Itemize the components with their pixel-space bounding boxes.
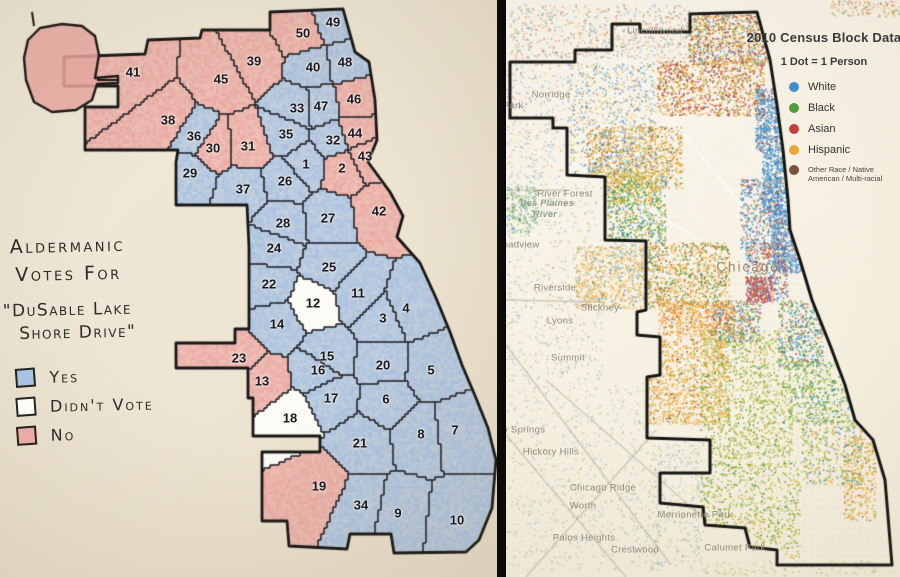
black-label: Black — [808, 102, 835, 114]
census-legend-title: 2010 Census Block Data — [745, 30, 900, 45]
vote-legend: Yes Didn't Vote No — [15, 361, 155, 451]
place-label-chicago-ridge: Chicago Ridge — [570, 483, 636, 494]
left-map-title: Aldermanic Votes For — [9, 231, 125, 289]
legend-row-other: Other Race / Native American / Multi-rac… — [789, 165, 900, 183]
yes-label: Yes — [49, 367, 79, 387]
ward-label-8: 8 — [417, 427, 424, 442]
didnt-vote-label: Didn't Vote — [50, 395, 154, 416]
place-label-norridge: Norridge — [532, 90, 571, 101]
didnt-vote-swatch — [15, 397, 36, 417]
ward-label-49: 49 — [326, 15, 340, 30]
place-label-calumet-park: Calumet Park — [704, 543, 765, 554]
ward-label-7: 7 — [451, 423, 458, 438]
ward-label-15: 15 — [320, 349, 334, 364]
ward-label-29: 29 — [183, 166, 197, 181]
left-map-subject: "DuSable Lake Shore Drive" — [3, 298, 137, 347]
place-label-chicago: Chicago — [716, 260, 780, 275]
place-label-summit: Summit — [551, 353, 585, 364]
place-label-hickory-hills: Hickory Hills — [523, 447, 579, 458]
black-dot-icon — [789, 103, 799, 113]
ward-label-5: 5 — [427, 363, 434, 378]
subject-line-1: "DuSable Lake — [3, 298, 137, 324]
ward-label-3: 3 — [379, 311, 386, 326]
ward-label-31: 31 — [241, 139, 255, 154]
ward-label-23: 23 — [232, 351, 246, 366]
other-race-dot-icon — [789, 165, 799, 175]
legend-row-hispanic: Hispanic — [789, 144, 900, 156]
no-label: No — [50, 425, 75, 445]
ward-label-36: 36 — [187, 129, 201, 144]
place-label-palos-heights: Palos Heights — [553, 533, 616, 544]
ward-label-27: 27 — [321, 211, 335, 226]
ward-label-20: 20 — [376, 358, 390, 373]
place-label-park: Park — [506, 101, 523, 112]
ward-label-16: 16 — [311, 363, 325, 378]
ward-label-50: 50 — [296, 26, 310, 41]
ward-label-2: 2 — [338, 161, 345, 176]
ward-label-14: 14 — [270, 317, 284, 332]
place-label-stickney: Stickney — [581, 303, 619, 314]
ward-label-44: 44 — [348, 126, 362, 141]
legend-row-black: Black — [789, 102, 900, 114]
place-label-lincolnwood: Lincolnwood — [627, 26, 683, 37]
subject-line-2: Shore Drive" — [19, 321, 137, 346]
hispanic-label: Hispanic — [808, 144, 850, 156]
census-dot-map-panel: 2010 Census Block Data 1 Dot = 1 Person … — [506, 0, 900, 577]
ward-label-18: 18 — [283, 411, 297, 426]
asian-dot-icon — [789, 124, 799, 134]
census-legend-rows: White Black Asian Hispanic Other Race / … — [789, 81, 900, 183]
ward-label-4: 4 — [402, 301, 409, 316]
ward-label-19: 19 — [312, 479, 326, 494]
ward-label-46: 46 — [347, 92, 361, 107]
ward-label-21: 21 — [353, 436, 367, 451]
ward-vote-map-panel: Aldermanic Votes For "DuSable Lake Shore… — [0, 0, 497, 577]
legend-row-no: No — [16, 419, 154, 451]
white-label: White — [808, 81, 836, 93]
census-legend-subtitle: 1 Dot = 1 Person — [745, 56, 900, 68]
title-line-2: Votes For — [15, 259, 126, 289]
ward-label-40: 40 — [306, 60, 320, 75]
no-swatch — [16, 426, 37, 446]
ward-label-9: 9 — [394, 506, 401, 521]
title-line-1: Aldermanic — [9, 231, 125, 261]
hispanic-dot-icon — [789, 145, 799, 155]
place-label-crestwood: Crestwood — [611, 545, 659, 556]
ward-label-13: 13 — [255, 374, 269, 389]
place-label-merrionette-park: Merrionette Park — [657, 510, 732, 521]
ward-label-30: 30 — [206, 141, 220, 156]
legend-row-yes: Yes — [15, 361, 153, 393]
place-label-des-plaines: Des Plaines — [520, 198, 574, 208]
ward-map-canvas — [0, 0, 497, 577]
ward-label-35: 35 — [279, 127, 293, 142]
yes-swatch — [15, 368, 36, 388]
ward-label-32: 32 — [326, 133, 340, 148]
ward-label-17: 17 — [324, 391, 338, 406]
ward-label-48: 48 — [338, 55, 352, 70]
place-label-willow-springs: Willow Springs — [506, 425, 545, 436]
panel-divider — [497, 0, 506, 577]
place-label-broadview: Broadview — [506, 240, 540, 251]
ward-label-28: 28 — [276, 216, 290, 231]
ward-label-12: 12 — [306, 296, 320, 311]
ward-label-26: 26 — [278, 174, 292, 189]
place-label-lyons: Lyons — [547, 316, 574, 327]
ward-label-39: 39 — [247, 54, 261, 69]
ward-label-1: 1 — [302, 157, 309, 172]
two-map-composite: Aldermanic Votes For "DuSable Lake Shore… — [0, 0, 900, 577]
place-label-river: River — [533, 209, 557, 219]
legend-row-white: White — [789, 81, 900, 93]
ward-label-11: 11 — [351, 286, 365, 301]
ward-label-38: 38 — [161, 113, 175, 128]
other-race-label: Other Race / Native American / Multi-rac… — [808, 165, 900, 183]
ward-label-37: 37 — [236, 182, 250, 197]
place-label-riverside: Riverside — [534, 283, 576, 294]
ward-label-47: 47 — [314, 99, 328, 114]
census-legend: 2010 Census Block Data 1 Dot = 1 Person … — [745, 30, 900, 183]
ward-label-41: 41 — [126, 65, 140, 80]
ward-label-10: 10 — [450, 513, 464, 528]
place-label-worth: Worth — [570, 501, 597, 512]
ward-label-22: 22 — [262, 277, 276, 292]
ward-label-33: 33 — [290, 101, 304, 116]
ward-label-42: 42 — [372, 204, 386, 219]
ward-label-34: 34 — [354, 498, 368, 513]
white-dot-icon — [789, 82, 799, 92]
asian-label: Asian — [808, 123, 836, 135]
ward-label-24: 24 — [267, 241, 281, 256]
ward-label-6: 6 — [382, 392, 389, 407]
ward-label-25: 25 — [322, 260, 336, 275]
legend-row-didnt-vote: Didn't Vote — [16, 390, 154, 422]
legend-row-asian: Asian — [789, 123, 900, 135]
ward-label-45: 45 — [214, 72, 228, 87]
ward-label-43: 43 — [358, 149, 372, 164]
